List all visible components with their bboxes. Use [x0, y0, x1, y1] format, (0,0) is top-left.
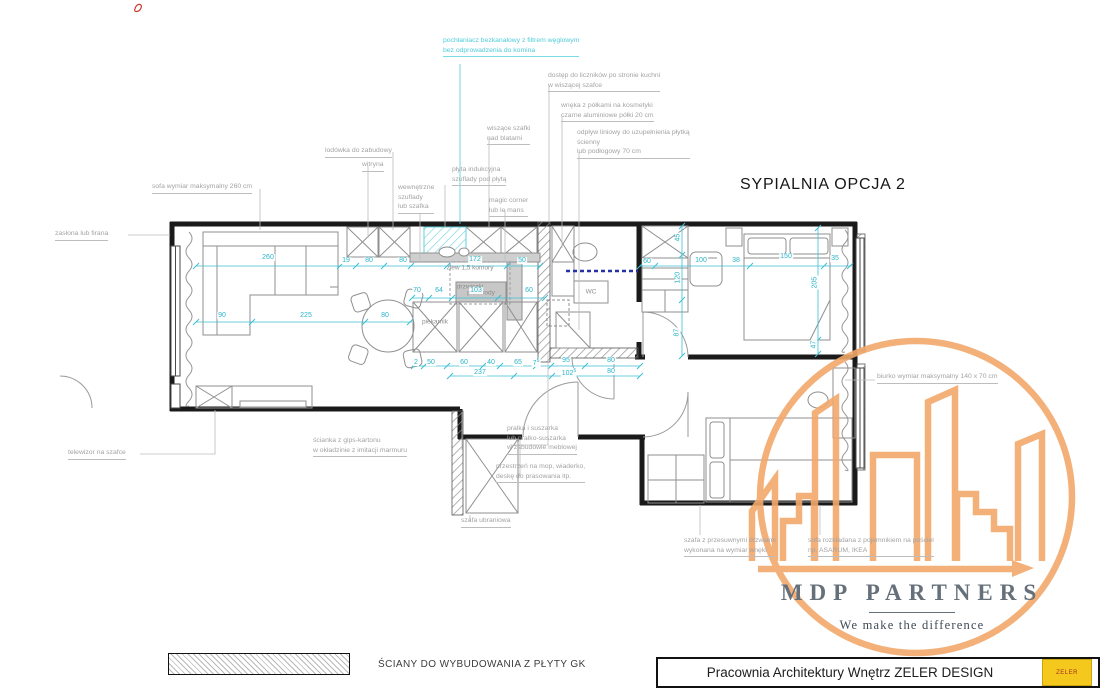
legend: ŚCIANY DO WYBUDOWANIA Z PŁYTY GK	[168, 653, 586, 675]
title-block: Pracownia Architektury Wnętrz ZELER DESI…	[656, 657, 1100, 688]
studio-stamp: ZELER	[1042, 659, 1092, 686]
logo-name: MDP PARTNERS	[762, 580, 1062, 606]
page-title: SYPIALNIA OPCJA 2	[740, 176, 906, 194]
logo-tagline: We make the difference	[762, 618, 1062, 633]
legend-hatch-swatch	[168, 653, 350, 675]
logo-skyline	[752, 390, 1042, 561]
studio-name: Pracownia Architektury Wnętrz ZELER DESI…	[658, 665, 1042, 680]
logo-divider	[869, 612, 955, 613]
legend-label: ŚCIANY DO WYBUDOWANIA Z PŁYTY GK	[378, 659, 586, 670]
logo-text: MDP PARTNERS We make the difference	[762, 580, 1062, 633]
floor-plan-page: MDP PARTNERS We make the difference SYPI…	[0, 0, 1100, 688]
logo-arrowhead	[1012, 560, 1034, 577]
